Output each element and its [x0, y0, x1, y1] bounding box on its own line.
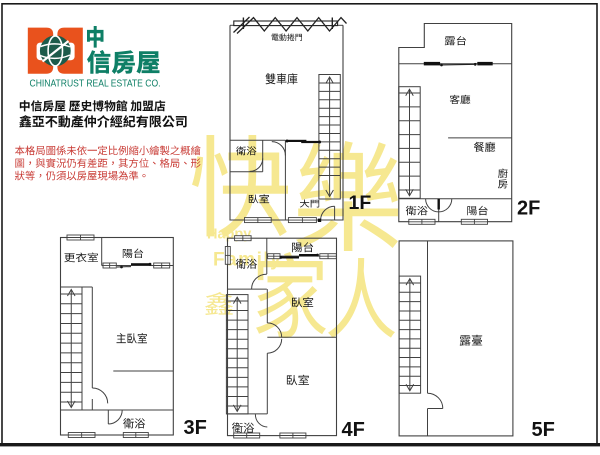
svg-text:4F: 4F — [342, 419, 365, 441]
svg-text:Family: Family — [213, 250, 282, 271]
svg-text:2F: 2F — [517, 198, 540, 220]
svg-text:CHINATRUST REAL ESTATE CO.: CHINATRUST REAL ESTATE CO. — [30, 79, 161, 90]
svg-text:3F: 3F — [184, 417, 207, 439]
svg-text:5F: 5F — [532, 419, 555, 441]
svg-text:1F: 1F — [349, 192, 372, 214]
